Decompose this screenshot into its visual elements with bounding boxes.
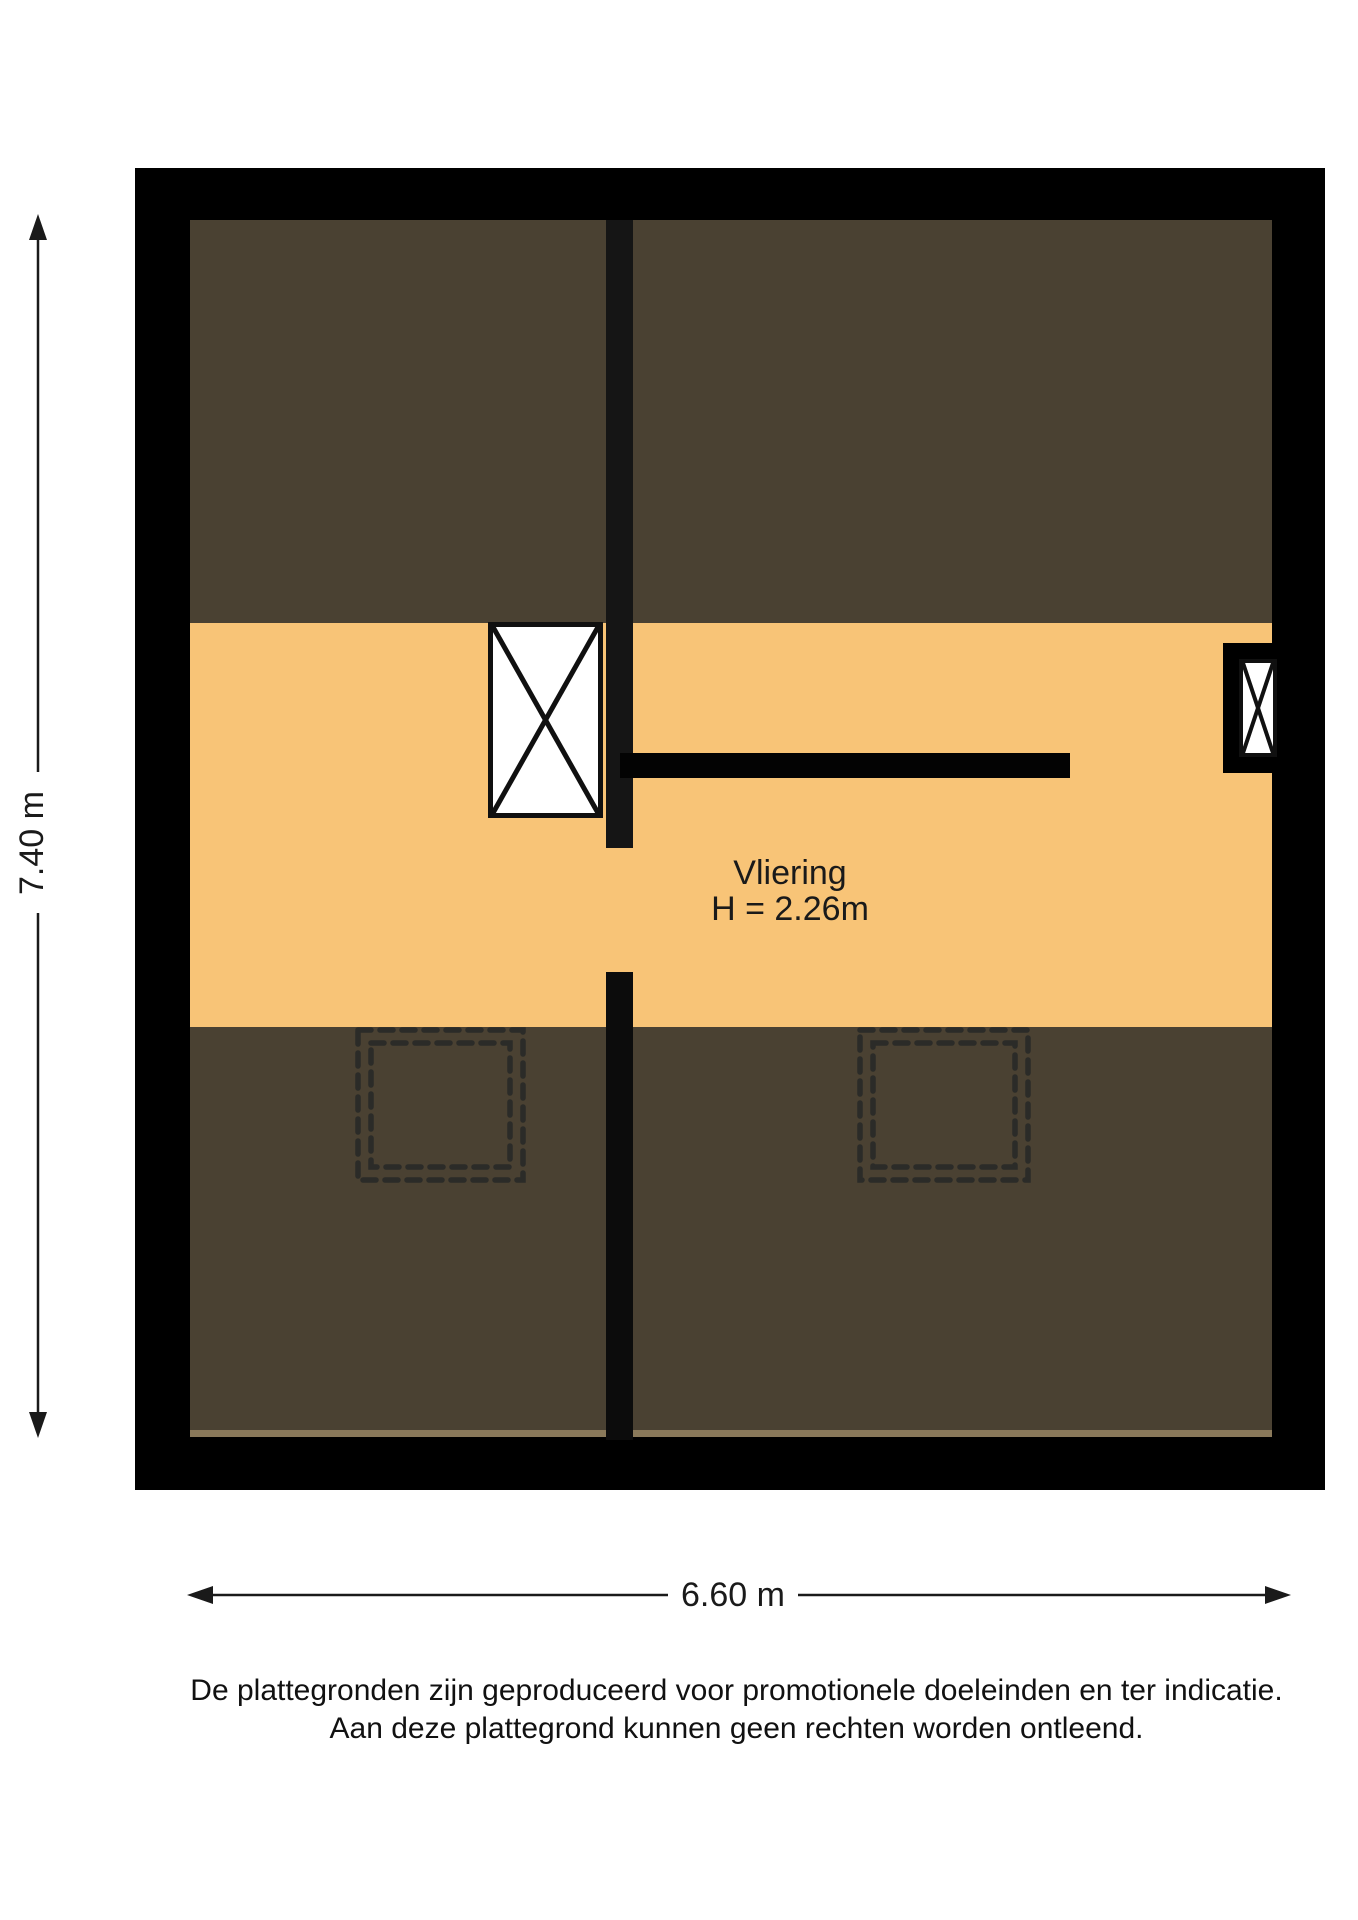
room-label: Vliering H = 2.26m [590,855,990,927]
room-name-label: Vliering [590,855,990,891]
arrow-up-icon [29,214,47,240]
interior-wall-horizontal [620,753,1070,778]
dimension-height-label: 7.40 m [12,773,52,913]
floor-edge-highlight [190,1430,1272,1437]
attic-floor-area [190,623,1272,1027]
disclaimer-line-2: Aan deze plattegrond kunnen geen rechten… [115,1710,1358,1748]
arrow-down-icon [29,1412,47,1438]
floorplan-page: Vliering H = 2.26m 7.40 m 6.60 m De plat… [0,0,1358,1920]
staircase-box [488,622,603,818]
arrow-right-icon [1265,1586,1291,1604]
disclaimer: De plattegronden zijn geproduceerd voor … [115,1672,1358,1748]
window-glass [1239,659,1277,757]
disclaimer-line-1: De plattegronden zijn geproduceerd voor … [115,1672,1358,1710]
dimension-width-label: 6.60 m [633,1575,833,1615]
arrow-left-icon [187,1586,213,1604]
room-height-label: H = 2.26m [590,891,990,927]
interior-wall-lower [606,972,633,1440]
